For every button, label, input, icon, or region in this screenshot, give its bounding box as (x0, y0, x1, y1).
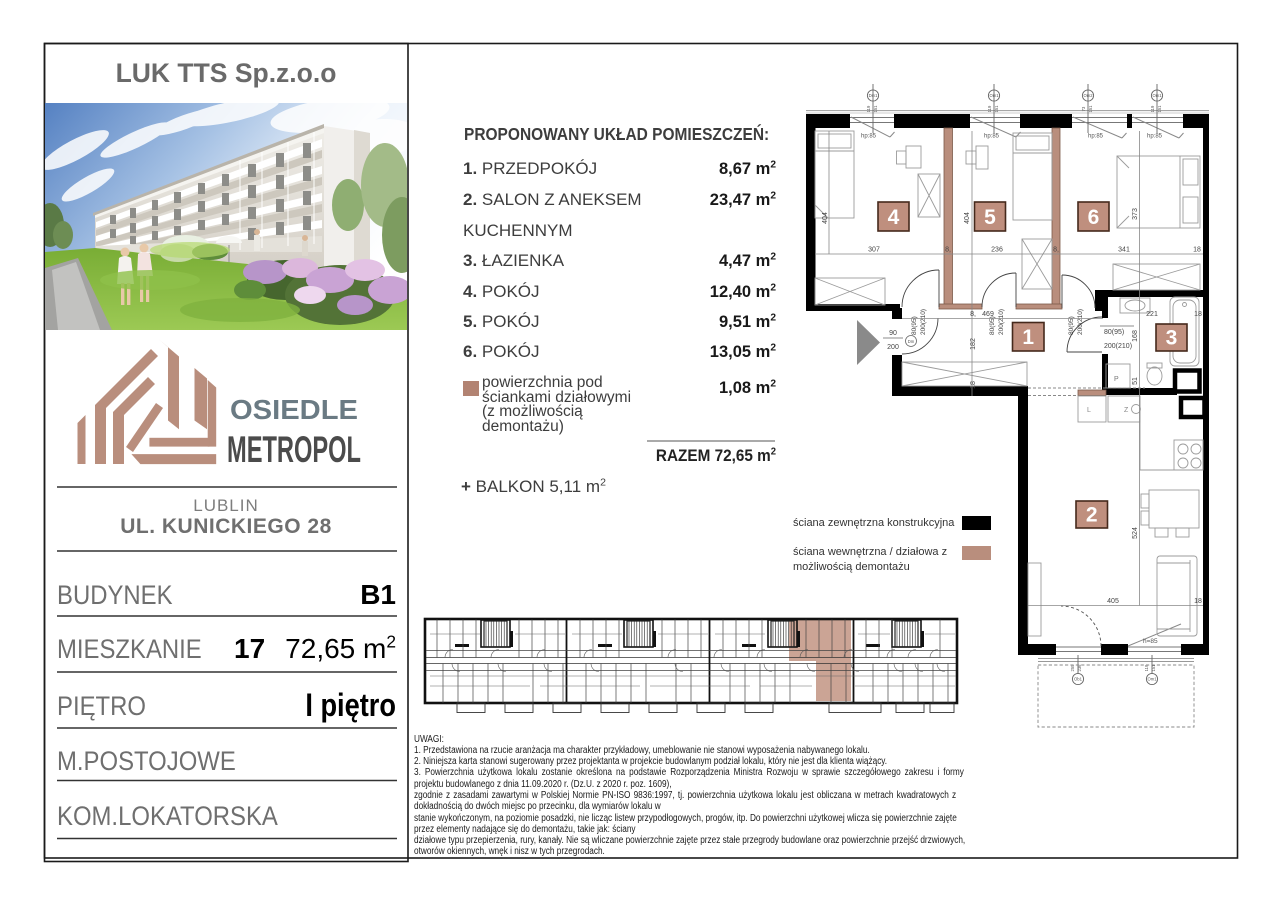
svg-text:Om1: Om1 (1152, 93, 1162, 98)
svg-text:80(95): 80(95) (1104, 329, 1124, 336)
svg-text:404: 404 (822, 212, 829, 224)
svg-text:Dm1: Dm1 (869, 93, 879, 98)
svg-text:18: 18 (1194, 598, 1202, 605)
svg-text:Ob1: Ob1 (1074, 677, 1083, 682)
svg-text:80(95): 80(95) (989, 316, 996, 335)
svg-text:200(210): 200(210) (920, 309, 927, 335)
svg-text:6: 6 (1088, 206, 1100, 229)
svg-text:151: 151 (1088, 105, 1093, 113)
svg-text:119: 119 (1150, 105, 1155, 112)
svg-text:3: 3 (1166, 327, 1178, 350)
svg-text:18: 18 (970, 381, 977, 389)
svg-text:METROPOL: METROPOL (227, 429, 361, 470)
svg-text:18: 18 (1193, 247, 1201, 254)
svg-text:200(210): 200(210) (998, 309, 1005, 335)
svg-text:90: 90 (889, 330, 897, 337)
svg-text:182: 182 (970, 338, 977, 350)
svg-text:236: 236 (991, 247, 1003, 254)
svg-text:151: 151 (873, 105, 878, 113)
svg-text:73: 73 (1081, 106, 1086, 111)
svg-text:8,: 8, (945, 247, 951, 254)
svg-text:404: 404 (964, 212, 971, 224)
svg-text:168: 168 (1132, 330, 1139, 342)
svg-text:51: 51 (1132, 377, 1139, 385)
svg-text:Om1: Om1 (1147, 677, 1157, 682)
svg-text:119: 119 (866, 105, 871, 112)
svg-text:8,: 8, (1053, 247, 1059, 254)
svg-text:200(210): 200(210) (1104, 343, 1132, 350)
svg-text:1: 1 (1022, 326, 1034, 349)
svg-text:373: 373 (1132, 208, 1139, 220)
svg-text:18: 18 (1194, 311, 1202, 318)
svg-text:OSIEDLE: OSIEDLE (230, 394, 358, 425)
svg-text:151: 151 (1157, 105, 1162, 113)
svg-text:2: 2 (1086, 504, 1098, 527)
svg-text:Om1: Om1 (989, 93, 999, 98)
svg-text:307: 307 (868, 247, 880, 254)
svg-text:5: 5 (984, 206, 996, 229)
svg-text:4: 4 (888, 206, 900, 229)
svg-text:200: 200 (887, 344, 899, 351)
svg-text:151: 151 (994, 105, 999, 113)
svg-text:200(210): 200(210) (1077, 309, 1084, 335)
svg-text:hp:85: hp:85 (1147, 134, 1163, 140)
svg-text:405: 405 (1107, 598, 1119, 605)
svg-text:341: 341 (1118, 247, 1130, 254)
svg-text:hp:85: hp:85 (984, 134, 1000, 140)
svg-text:h=85: h=85 (1143, 638, 1158, 645)
svg-text:119: 119 (987, 105, 992, 112)
svg-text:Z: Z (1124, 407, 1129, 414)
svg-text:P: P (1114, 376, 1119, 383)
svg-text:80(95): 80(95) (911, 316, 918, 335)
svg-text:524: 524 (1132, 527, 1139, 539)
svg-text:hp:85: hp:85 (861, 134, 877, 140)
svg-text:L: L (1087, 407, 1091, 414)
svg-text:Om2: Om2 (1083, 93, 1093, 98)
svg-text:221: 221 (1146, 311, 1158, 318)
svg-text:Dm: Dm (908, 339, 915, 344)
svg-text:80(95): 80(95) (1068, 316, 1075, 335)
svg-text:hp:85: hp:85 (1088, 134, 1104, 140)
svg-text:8,: 8, (970, 311, 976, 318)
